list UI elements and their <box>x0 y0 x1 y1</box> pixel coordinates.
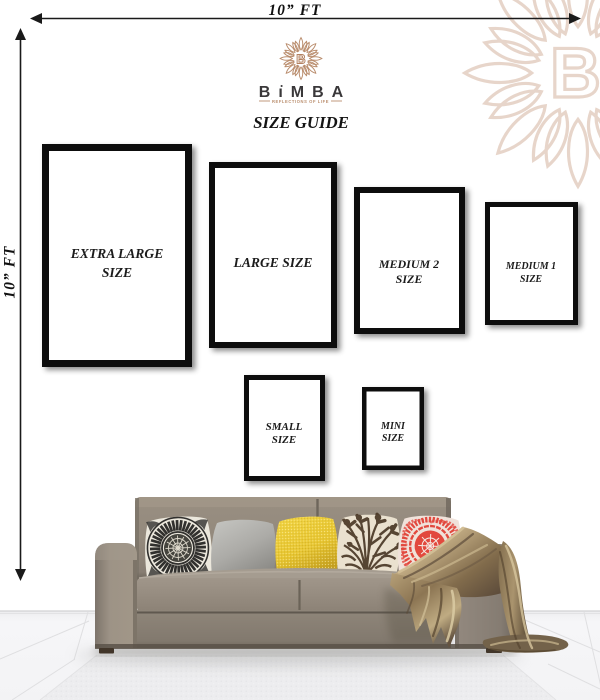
svg-text:REFLECTIONS OF LIFE: REFLECTIONS OF LIFE <box>272 99 329 104</box>
svg-text:SIZE: SIZE <box>520 274 543 285</box>
svg-text:B: B <box>296 52 305 67</box>
svg-text:LARGE SIZE: LARGE SIZE <box>233 255 313 270</box>
svg-text:SMALL: SMALL <box>266 421 303 433</box>
svg-text:SIZE: SIZE <box>396 272 423 286</box>
svg-text:SIZE: SIZE <box>272 434 296 446</box>
svg-text:10” FT: 10” FT <box>2 246 19 299</box>
svg-text:B: B <box>550 34 600 112</box>
svg-text:EXTRA LARGE: EXTRA LARGE <box>70 246 164 261</box>
svg-text:10” FT: 10” FT <box>269 2 322 19</box>
svg-text:SIZE: SIZE <box>102 265 132 280</box>
svg-text:MEDIUM 1: MEDIUM 1 <box>505 261 556 272</box>
svg-text:SIZE GUIDE: SIZE GUIDE <box>253 113 349 132</box>
svg-text:MEDIUM 2: MEDIUM 2 <box>378 257 439 271</box>
svg-text:SIZE: SIZE <box>382 433 405 444</box>
svg-text:MINI: MINI <box>380 421 406 432</box>
